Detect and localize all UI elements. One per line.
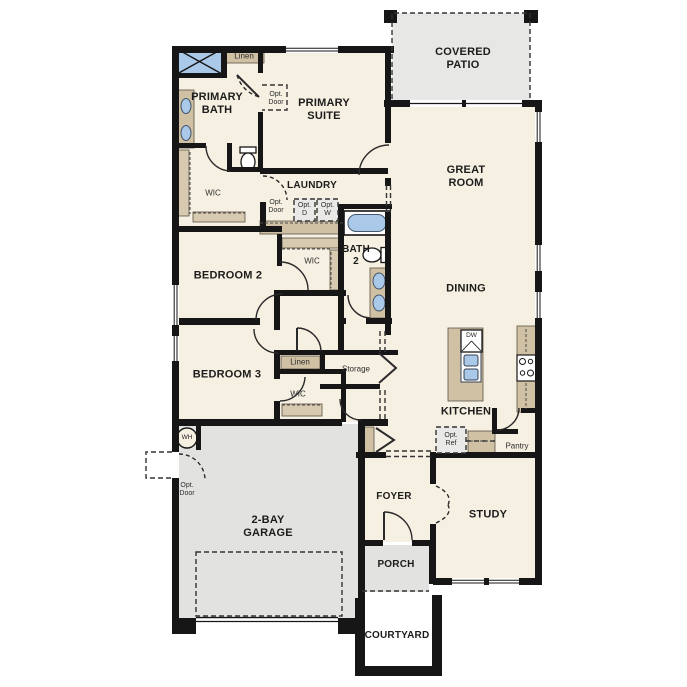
opt-door-garage-outline bbox=[146, 452, 172, 478]
porch-slab bbox=[362, 545, 429, 592]
window bbox=[489, 578, 519, 585]
window bbox=[452, 578, 484, 585]
tub-icon bbox=[344, 211, 390, 235]
opt-ref-box bbox=[436, 427, 466, 453]
sink-icon bbox=[181, 99, 191, 114]
sliding-door bbox=[410, 100, 462, 107]
wic-bedroom3-shelf bbox=[282, 404, 322, 416]
window bbox=[535, 292, 542, 318]
floor-plan: PRIMARY BATH PRIMARY SUITE COVERED PATIO… bbox=[0, 0, 687, 687]
toilet-icon bbox=[363, 248, 387, 263]
window bbox=[286, 46, 338, 53]
sink-icon bbox=[373, 273, 385, 289]
range-icon bbox=[517, 355, 536, 381]
water-heater-icon bbox=[177, 428, 197, 448]
opt-washer-box bbox=[317, 199, 338, 221]
floor-plan-drawing bbox=[0, 0, 687, 687]
garage-door bbox=[196, 618, 338, 622]
sink-icon bbox=[373, 295, 385, 311]
window bbox=[535, 245, 542, 271]
garage-slab bbox=[179, 424, 362, 619]
dishwasher-icon bbox=[461, 330, 482, 352]
opt-dryer-box bbox=[294, 199, 315, 221]
wic-bedroom2-shelf-top bbox=[282, 238, 340, 248]
mud-bench bbox=[364, 427, 374, 453]
patio-slab bbox=[392, 13, 530, 101]
window bbox=[535, 112, 542, 142]
window bbox=[172, 285, 179, 325]
sliding-door bbox=[466, 100, 522, 107]
linen-hall-shelf bbox=[281, 356, 320, 369]
kitchen-counter-south bbox=[468, 431, 495, 453]
window bbox=[172, 336, 179, 361]
opt-door-opening bbox=[172, 452, 179, 478]
island-sink-icon bbox=[461, 352, 481, 382]
sink-icon bbox=[181, 126, 191, 141]
